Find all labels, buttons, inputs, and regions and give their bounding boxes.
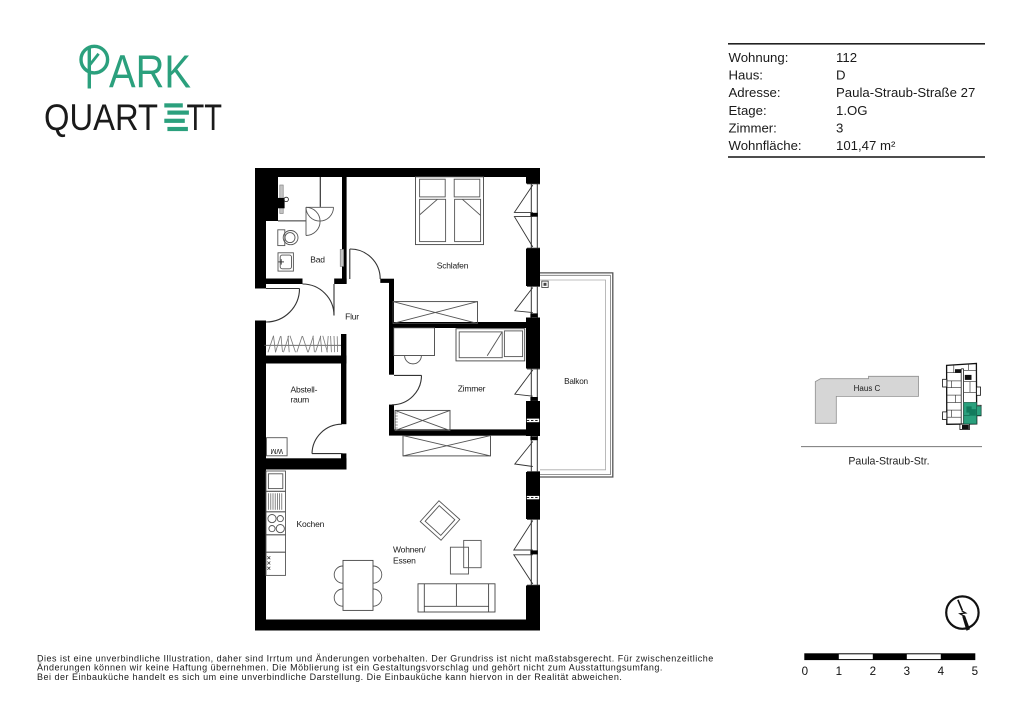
svg-text:D: D xyxy=(836,68,846,83)
svg-text:3: 3 xyxy=(836,120,843,135)
svg-text:WM: WM xyxy=(270,447,283,454)
svg-text:101,47 m²: 101,47 m² xyxy=(836,138,896,153)
svg-text:Kochen: Kochen xyxy=(297,519,325,529)
svg-text:5: 5 xyxy=(972,665,978,678)
svg-text:QUART: QUART xyxy=(44,97,158,138)
svg-text:2: 2 xyxy=(870,665,876,678)
svg-text:Paula-Straub-Str.: Paula-Straub-Str. xyxy=(848,456,929,468)
svg-text:Etage:: Etage: xyxy=(729,103,767,118)
svg-text:Wohnen/: Wohnen/ xyxy=(393,545,426,555)
svg-text:3: 3 xyxy=(904,665,910,678)
svg-text:raum: raum xyxy=(291,395,310,405)
svg-text:4: 4 xyxy=(938,665,945,678)
svg-text:1.OG: 1.OG xyxy=(836,103,868,118)
svg-text:Haus:: Haus: xyxy=(729,68,763,83)
svg-text:Abstell-: Abstell- xyxy=(291,385,318,395)
svg-text:Balkon: Balkon xyxy=(564,377,588,386)
svg-text:ARK: ARK xyxy=(109,46,191,98)
svg-text:0: 0 xyxy=(802,665,808,678)
svg-text:Bad: Bad xyxy=(310,254,325,264)
svg-text:1: 1 xyxy=(836,665,842,678)
svg-text:Wohnfläche:: Wohnfläche: xyxy=(729,138,802,153)
svg-text:Haus C: Haus C xyxy=(854,384,881,393)
svg-text:TT: TT xyxy=(187,97,223,138)
svg-text:Paula-Straub-Straße 27: Paula-Straub-Straße 27 xyxy=(836,85,975,100)
svg-text:112: 112 xyxy=(836,50,857,65)
svg-text:Adresse:: Adresse: xyxy=(729,85,781,100)
svg-text:Wohnung:: Wohnung: xyxy=(729,50,789,65)
svg-text:Zimmer:: Zimmer: xyxy=(729,120,777,135)
svg-text:Essen: Essen xyxy=(393,555,416,565)
svg-text:Bei der Einbauküche handelt es: Bei der Einbauküche handelt es sich um e… xyxy=(37,672,622,682)
svg-text:Flur: Flur xyxy=(345,311,359,321)
svg-text:Schlafen: Schlafen xyxy=(437,260,469,270)
svg-text:Zimmer: Zimmer xyxy=(458,383,486,393)
